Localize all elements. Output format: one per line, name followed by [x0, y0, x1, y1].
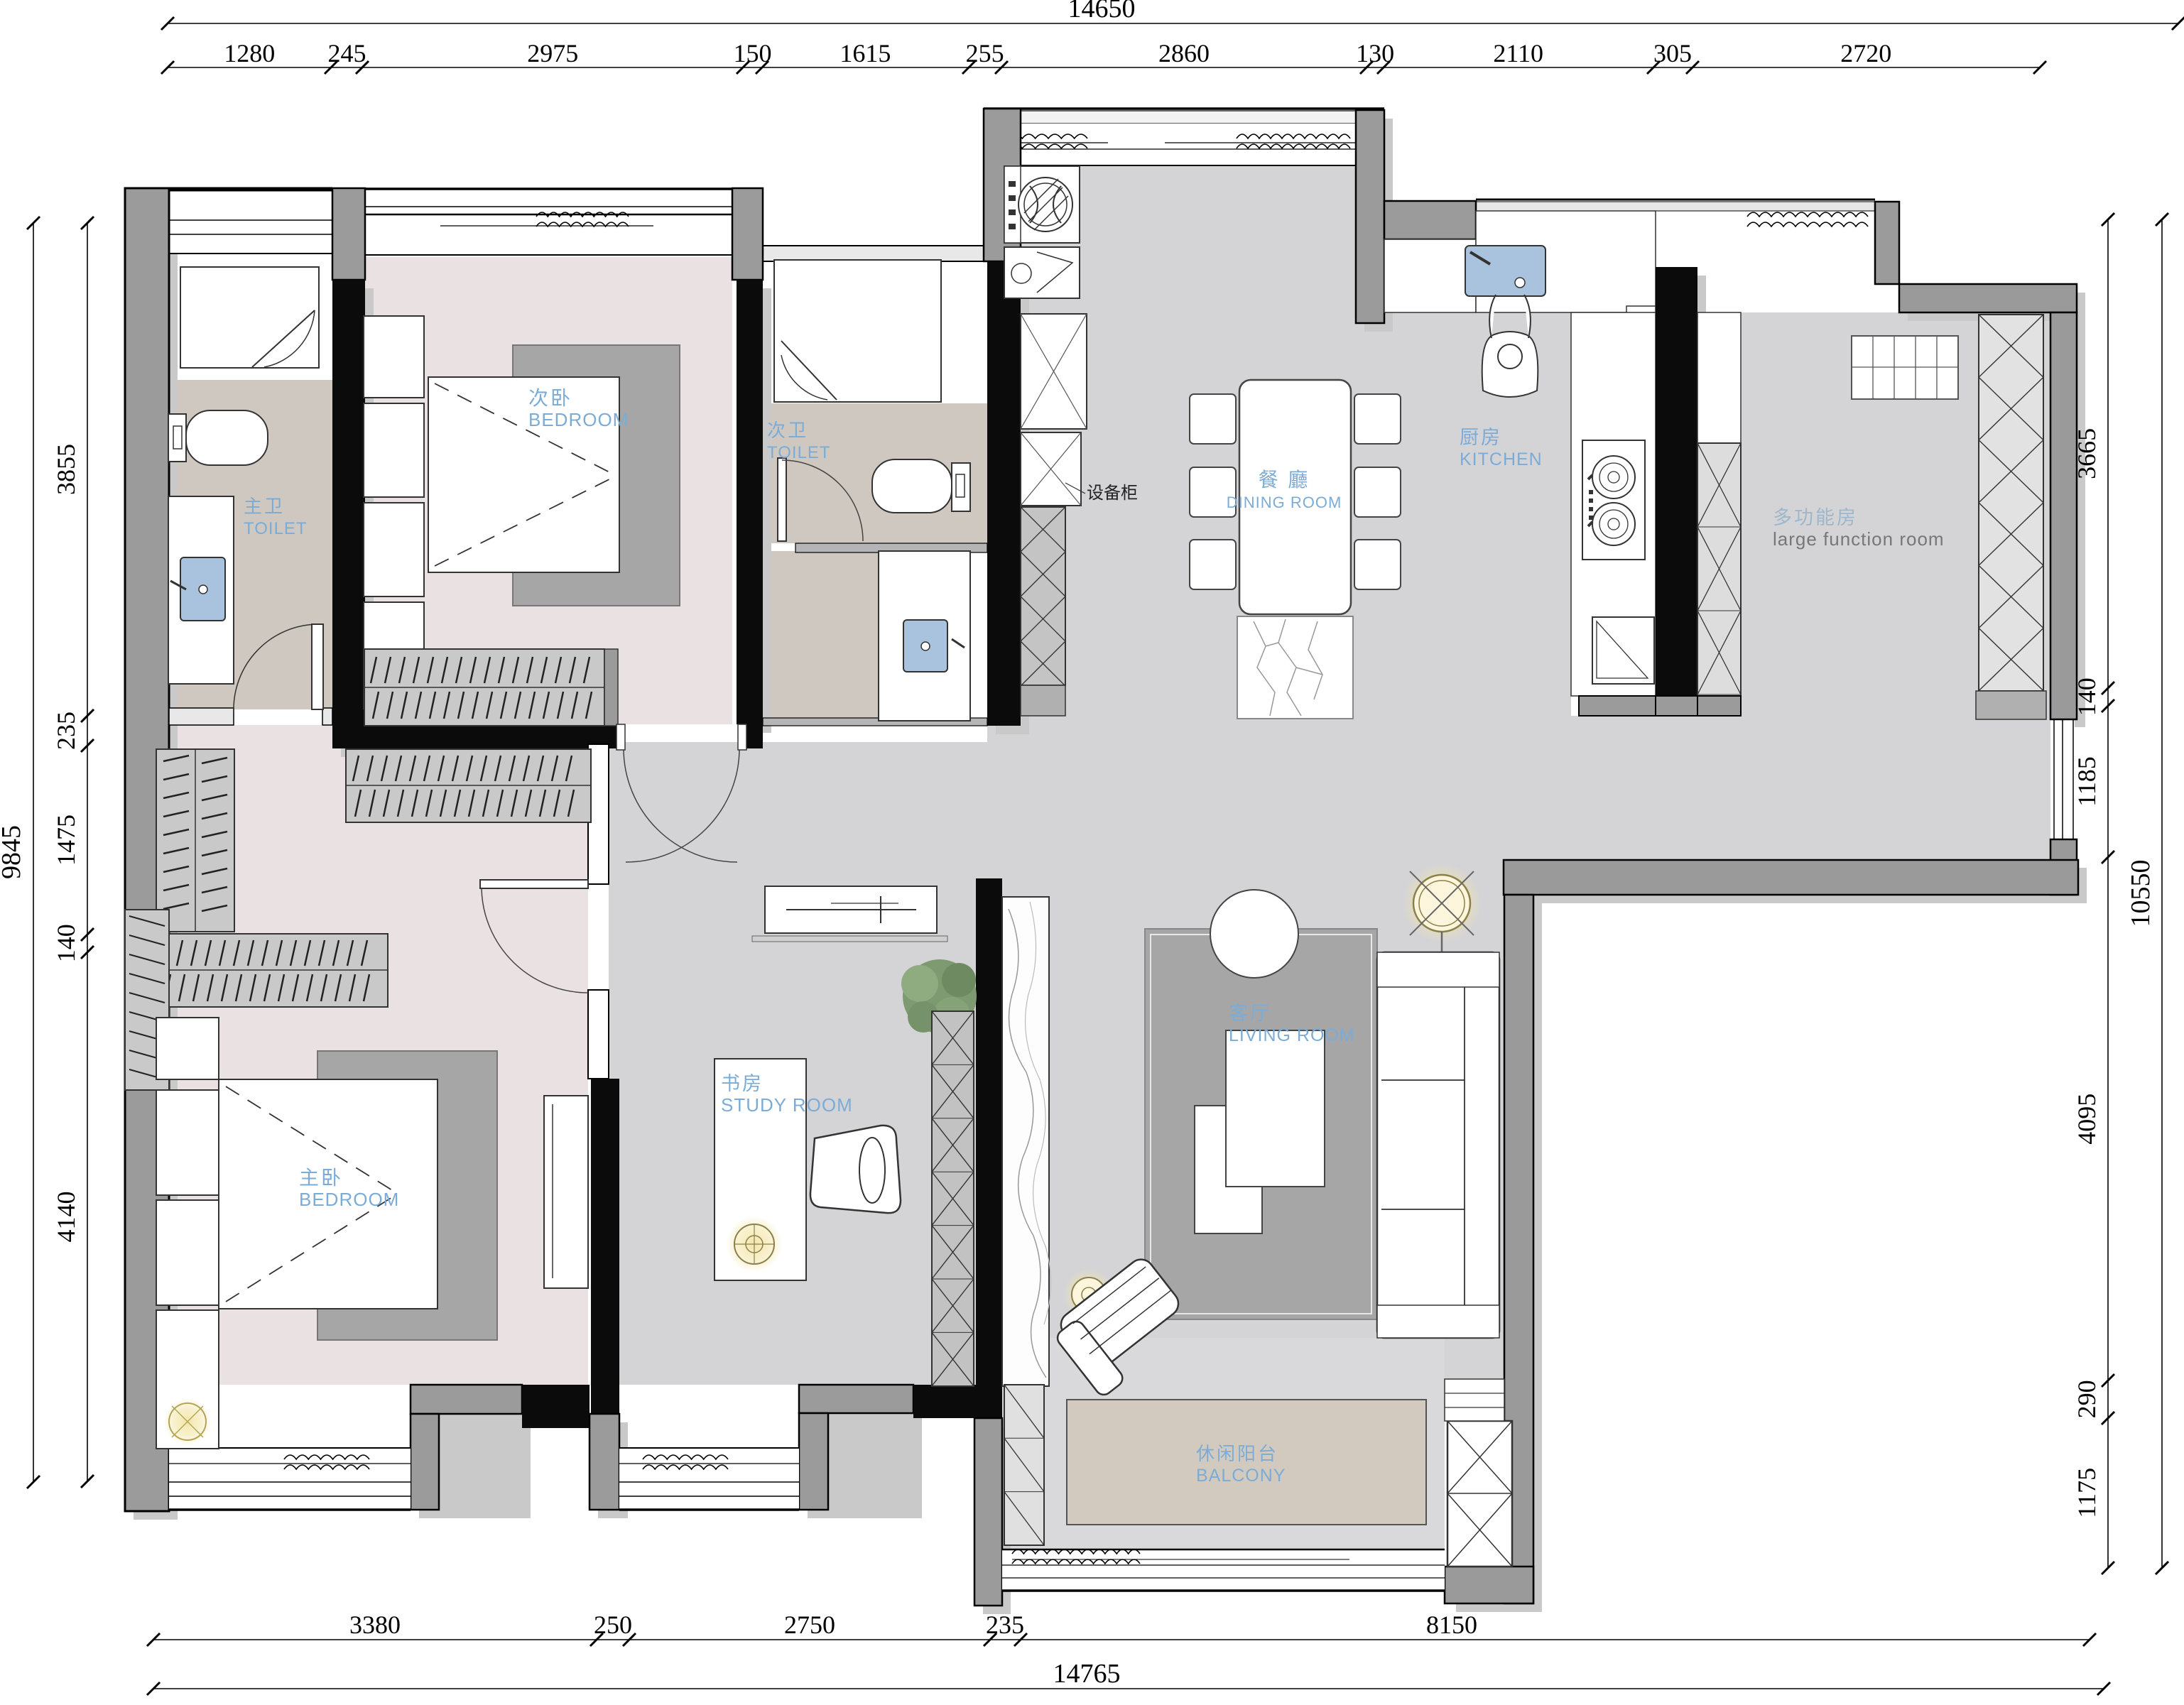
svg-text:2720: 2720: [1840, 39, 1891, 67]
svg-text:KITCHEN: KITCHEN: [1460, 450, 1543, 469]
svg-text:休闲阳台: 休闲阳台: [1196, 1443, 1278, 1464]
svg-text:2975: 2975: [527, 39, 578, 67]
svg-text:1615: 1615: [840, 39, 891, 67]
svg-text:4140: 4140: [52, 1192, 80, 1243]
svg-text:主卫: 主卫: [244, 496, 285, 517]
svg-text:150: 150: [734, 39, 772, 67]
svg-text:BALCONY: BALCONY: [1196, 1466, 1286, 1486]
svg-text:1475: 1475: [52, 815, 80, 866]
svg-text:large function room: large function room: [1773, 528, 1945, 550]
svg-text:10550: 10550: [2126, 860, 2156, 927]
svg-text:1280: 1280: [224, 39, 275, 67]
svg-text:主卧: 主卧: [299, 1167, 343, 1189]
svg-text:LIVING ROOM: LIVING ROOM: [1229, 1025, 1355, 1045]
svg-text:1175: 1175: [2072, 1468, 2101, 1518]
svg-text:STUDY ROOM: STUDY ROOM: [721, 1094, 853, 1116]
svg-text:BEDROOM: BEDROOM: [299, 1189, 399, 1210]
svg-text:255: 255: [966, 39, 1004, 67]
svg-text:次卫: 次卫: [767, 420, 808, 441]
svg-text:次卧: 次卧: [528, 387, 572, 409]
svg-text:书房: 书房: [721, 1073, 764, 1094]
svg-text:235: 235: [986, 1611, 1024, 1639]
svg-text:9845: 9845: [0, 825, 26, 879]
svg-text:3665: 3665: [2072, 428, 2101, 479]
svg-text:140: 140: [52, 924, 80, 962]
svg-text:4095: 4095: [2072, 1094, 2101, 1145]
svg-text:厨房: 厨房: [1460, 427, 1502, 448]
svg-text:8150: 8150: [1426, 1611, 1477, 1639]
svg-text:1185: 1185: [2072, 756, 2101, 807]
svg-text:245: 245: [327, 39, 366, 67]
svg-text:305: 305: [1653, 39, 1692, 67]
svg-text:2110: 2110: [1493, 39, 1543, 67]
svg-text:2860: 2860: [1158, 39, 1210, 67]
svg-text:290: 290: [2072, 1380, 2101, 1418]
svg-text:TOILET: TOILET: [767, 443, 831, 462]
svg-text:235: 235: [52, 712, 80, 750]
svg-text:250: 250: [594, 1611, 632, 1639]
svg-text:14650: 14650: [1068, 0, 1136, 23]
svg-text:客厅: 客厅: [1229, 1003, 1271, 1024]
svg-text:130: 130: [1356, 39, 1394, 67]
svg-text:TOILET: TOILET: [244, 519, 308, 538]
svg-text:140: 140: [2072, 677, 2101, 716]
svg-text:3855: 3855: [52, 444, 80, 495]
svg-text:多功能房: 多功能房: [1773, 507, 1858, 528]
svg-text:2750: 2750: [784, 1611, 835, 1639]
svg-text:14765: 14765: [1053, 1659, 1121, 1689]
svg-text:3380: 3380: [349, 1611, 401, 1639]
svg-text:设备柜: 设备柜: [1087, 484, 1138, 503]
svg-text:餐 廳: 餐 廳: [1259, 469, 1310, 491]
svg-text:BEDROOM: BEDROOM: [528, 409, 629, 430]
svg-text:DINING ROOM: DINING ROOM: [1227, 494, 1342, 511]
